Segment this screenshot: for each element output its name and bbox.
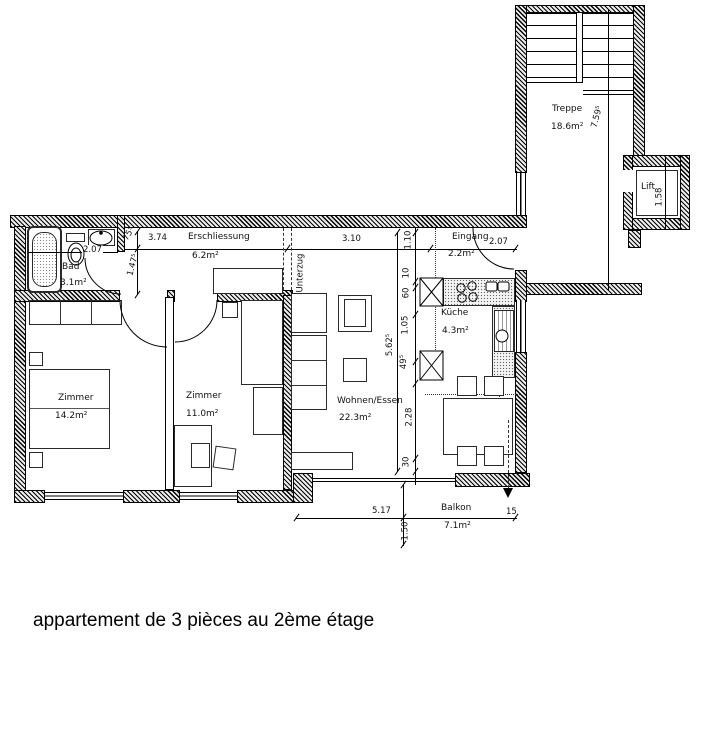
room-label-erschliessung: Erschliessung — [188, 232, 250, 242]
nightstand-1 — [29, 352, 43, 366]
shaft-box-1 — [420, 278, 443, 306]
dim-living-depth: 5.62⁵ — [379, 340, 401, 350]
shaft-box-2 — [420, 351, 443, 380]
wall-right-b — [515, 352, 527, 473]
dim-hall-depth: 1.47⁵ — [122, 260, 144, 270]
dim-bad-width: 2.07 — [82, 245, 103, 255]
dim-line-living-total — [397, 232, 398, 472]
double-bed — [29, 369, 110, 449]
window-zimmer1 — [45, 492, 123, 500]
tick — [135, 291, 141, 299]
desk-chair-2 — [213, 446, 237, 471]
lift-stub-wall — [628, 230, 641, 248]
dim-seg-10: 10 — [401, 268, 412, 278]
lift-wall-left — [623, 155, 633, 230]
balcony-door-rail-1 — [313, 478, 455, 479]
stair-right-wall — [633, 5, 645, 157]
dim-seg-60: 60 — [401, 288, 412, 298]
wall-step-living — [293, 473, 313, 503]
wall-left — [14, 226, 26, 503]
single-bed — [241, 300, 283, 385]
wall-bottom-living-right — [455, 473, 530, 487]
landing-bottom-wall — [515, 283, 642, 295]
tick — [395, 468, 401, 476]
unterzug-label: Unterzug — [281, 268, 320, 278]
unterzug-dash-1 — [283, 228, 284, 290]
tick — [513, 245, 519, 253]
kitchen-counter-top — [443, 278, 515, 306]
corridor-closet — [213, 268, 283, 294]
sofa-2seat — [291, 293, 327, 333]
balcony-door-rail-2 — [313, 481, 455, 482]
eingang-boundary-dotted — [435, 228, 436, 380]
dining-chair-3 — [457, 446, 477, 466]
coffee-table — [343, 358, 367, 382]
room-area-bad: 3.1m² — [60, 278, 87, 288]
lift-door-gap — [623, 170, 633, 192]
room-label-wohnen: Wohnen/Essen — [337, 396, 403, 406]
door-arc-zimmer2 — [175, 300, 217, 342]
stair-divider — [576, 12, 583, 83]
lift-wall-right — [680, 155, 690, 230]
window-zimmer2 — [180, 492, 237, 500]
dim-seg-495: 49⁵ — [397, 357, 411, 367]
room-label-zimmer2: Zimmer — [186, 391, 221, 401]
dresser — [253, 387, 283, 435]
room-area-eingang: 2.2m² — [448, 249, 475, 259]
kitchen-fridge — [494, 310, 514, 352]
dim-stair-depth: 7.59⁵ — [586, 112, 608, 122]
room-label-kueche: Küche — [441, 308, 468, 318]
dim-line-balcony-w — [296, 518, 517, 519]
sofa-3seat — [291, 335, 327, 410]
dim-line-chain — [415, 228, 416, 485]
toilet-tank — [66, 233, 85, 242]
exit-arrow-line — [508, 420, 509, 488]
stair-window — [516, 173, 526, 215]
door-arc-bad — [85, 258, 121, 294]
dim-eingang-depth: 1.10 — [399, 235, 418, 245]
dim-hall-width-left: 3.74 — [148, 233, 167, 243]
room-area-balkon: 7.1m² — [444, 521, 471, 531]
washbasin-counter — [88, 229, 115, 246]
wall-bottom-z1-a — [14, 490, 45, 503]
room-label-bad: Bad — [62, 262, 79, 272]
wall-right-a — [515, 270, 527, 302]
dining-chair-4 — [484, 446, 504, 466]
dim-hall-width-right: 3.10 — [342, 234, 361, 244]
room-label-treppe: Treppe — [552, 104, 582, 114]
desk-chair-1 — [191, 443, 210, 468]
dim-eingang-width: 2.07 — [488, 237, 509, 247]
room-area-zimmer1: 14.2m² — [55, 411, 87, 421]
sideboard — [291, 452, 353, 470]
dim-balkon-depth: 1.50 — [396, 526, 415, 536]
window-kueche — [516, 300, 526, 352]
room-area-zimmer2: 11.0m² — [186, 409, 218, 419]
room-area-kueche: 4.3m² — [442, 326, 469, 336]
room-area-erschliessung: 6.2m² — [192, 251, 219, 261]
bathtub-inner — [32, 232, 57, 287]
wardrobe — [29, 300, 122, 325]
door-arc-zimmer1 — [120, 300, 167, 347]
room-area-wohnen: 22.3m² — [339, 413, 371, 423]
dining-chair-1 — [457, 376, 477, 396]
tick — [401, 541, 407, 549]
toilet-bowl-inner — [71, 248, 81, 262]
dining-chair-2 — [484, 376, 504, 396]
dim-line-stair — [608, 10, 609, 290]
nightstand-2 — [29, 452, 43, 468]
room-label-balkon: Balkon — [441, 503, 471, 513]
wall-zimmer-partition — [165, 297, 174, 490]
room-label-zimmer1: Zimmer — [58, 393, 93, 403]
armchair-cushion — [344, 299, 366, 327]
room-label-eingang: Eingang — [452, 232, 489, 242]
plan-caption: appartement de 3 pièces au 2ème étage — [33, 610, 374, 632]
dim-balkon-width: 5.17 — [370, 506, 393, 516]
dim-seg-105: 1.05 — [396, 320, 415, 330]
bed-divider — [30, 408, 109, 409]
wall-top — [10, 215, 527, 228]
room-area-treppe: 18.6m² — [551, 122, 583, 132]
room-label-lift: Lift — [641, 182, 655, 192]
dim-seg-228: 2.28 — [400, 412, 419, 422]
dim-line-bad — [28, 252, 118, 253]
small-table — [222, 302, 238, 318]
stair-treads-left — [527, 12, 576, 82]
dim-lift-width: 1.58 — [650, 192, 669, 202]
dim-seg-30: 30 — [401, 457, 412, 467]
floor-plan: Treppe 18.6m² 7.59⁵ Lift 1.58 Bad 3.1m² … — [0, 0, 701, 732]
exit-arrow-head — [503, 488, 513, 498]
stair-left-wall — [515, 5, 527, 173]
unterzug-dash-2 — [291, 228, 292, 290]
stair-landing-line-left — [527, 82, 576, 83]
wall-bottom-z1-b — [123, 490, 180, 503]
